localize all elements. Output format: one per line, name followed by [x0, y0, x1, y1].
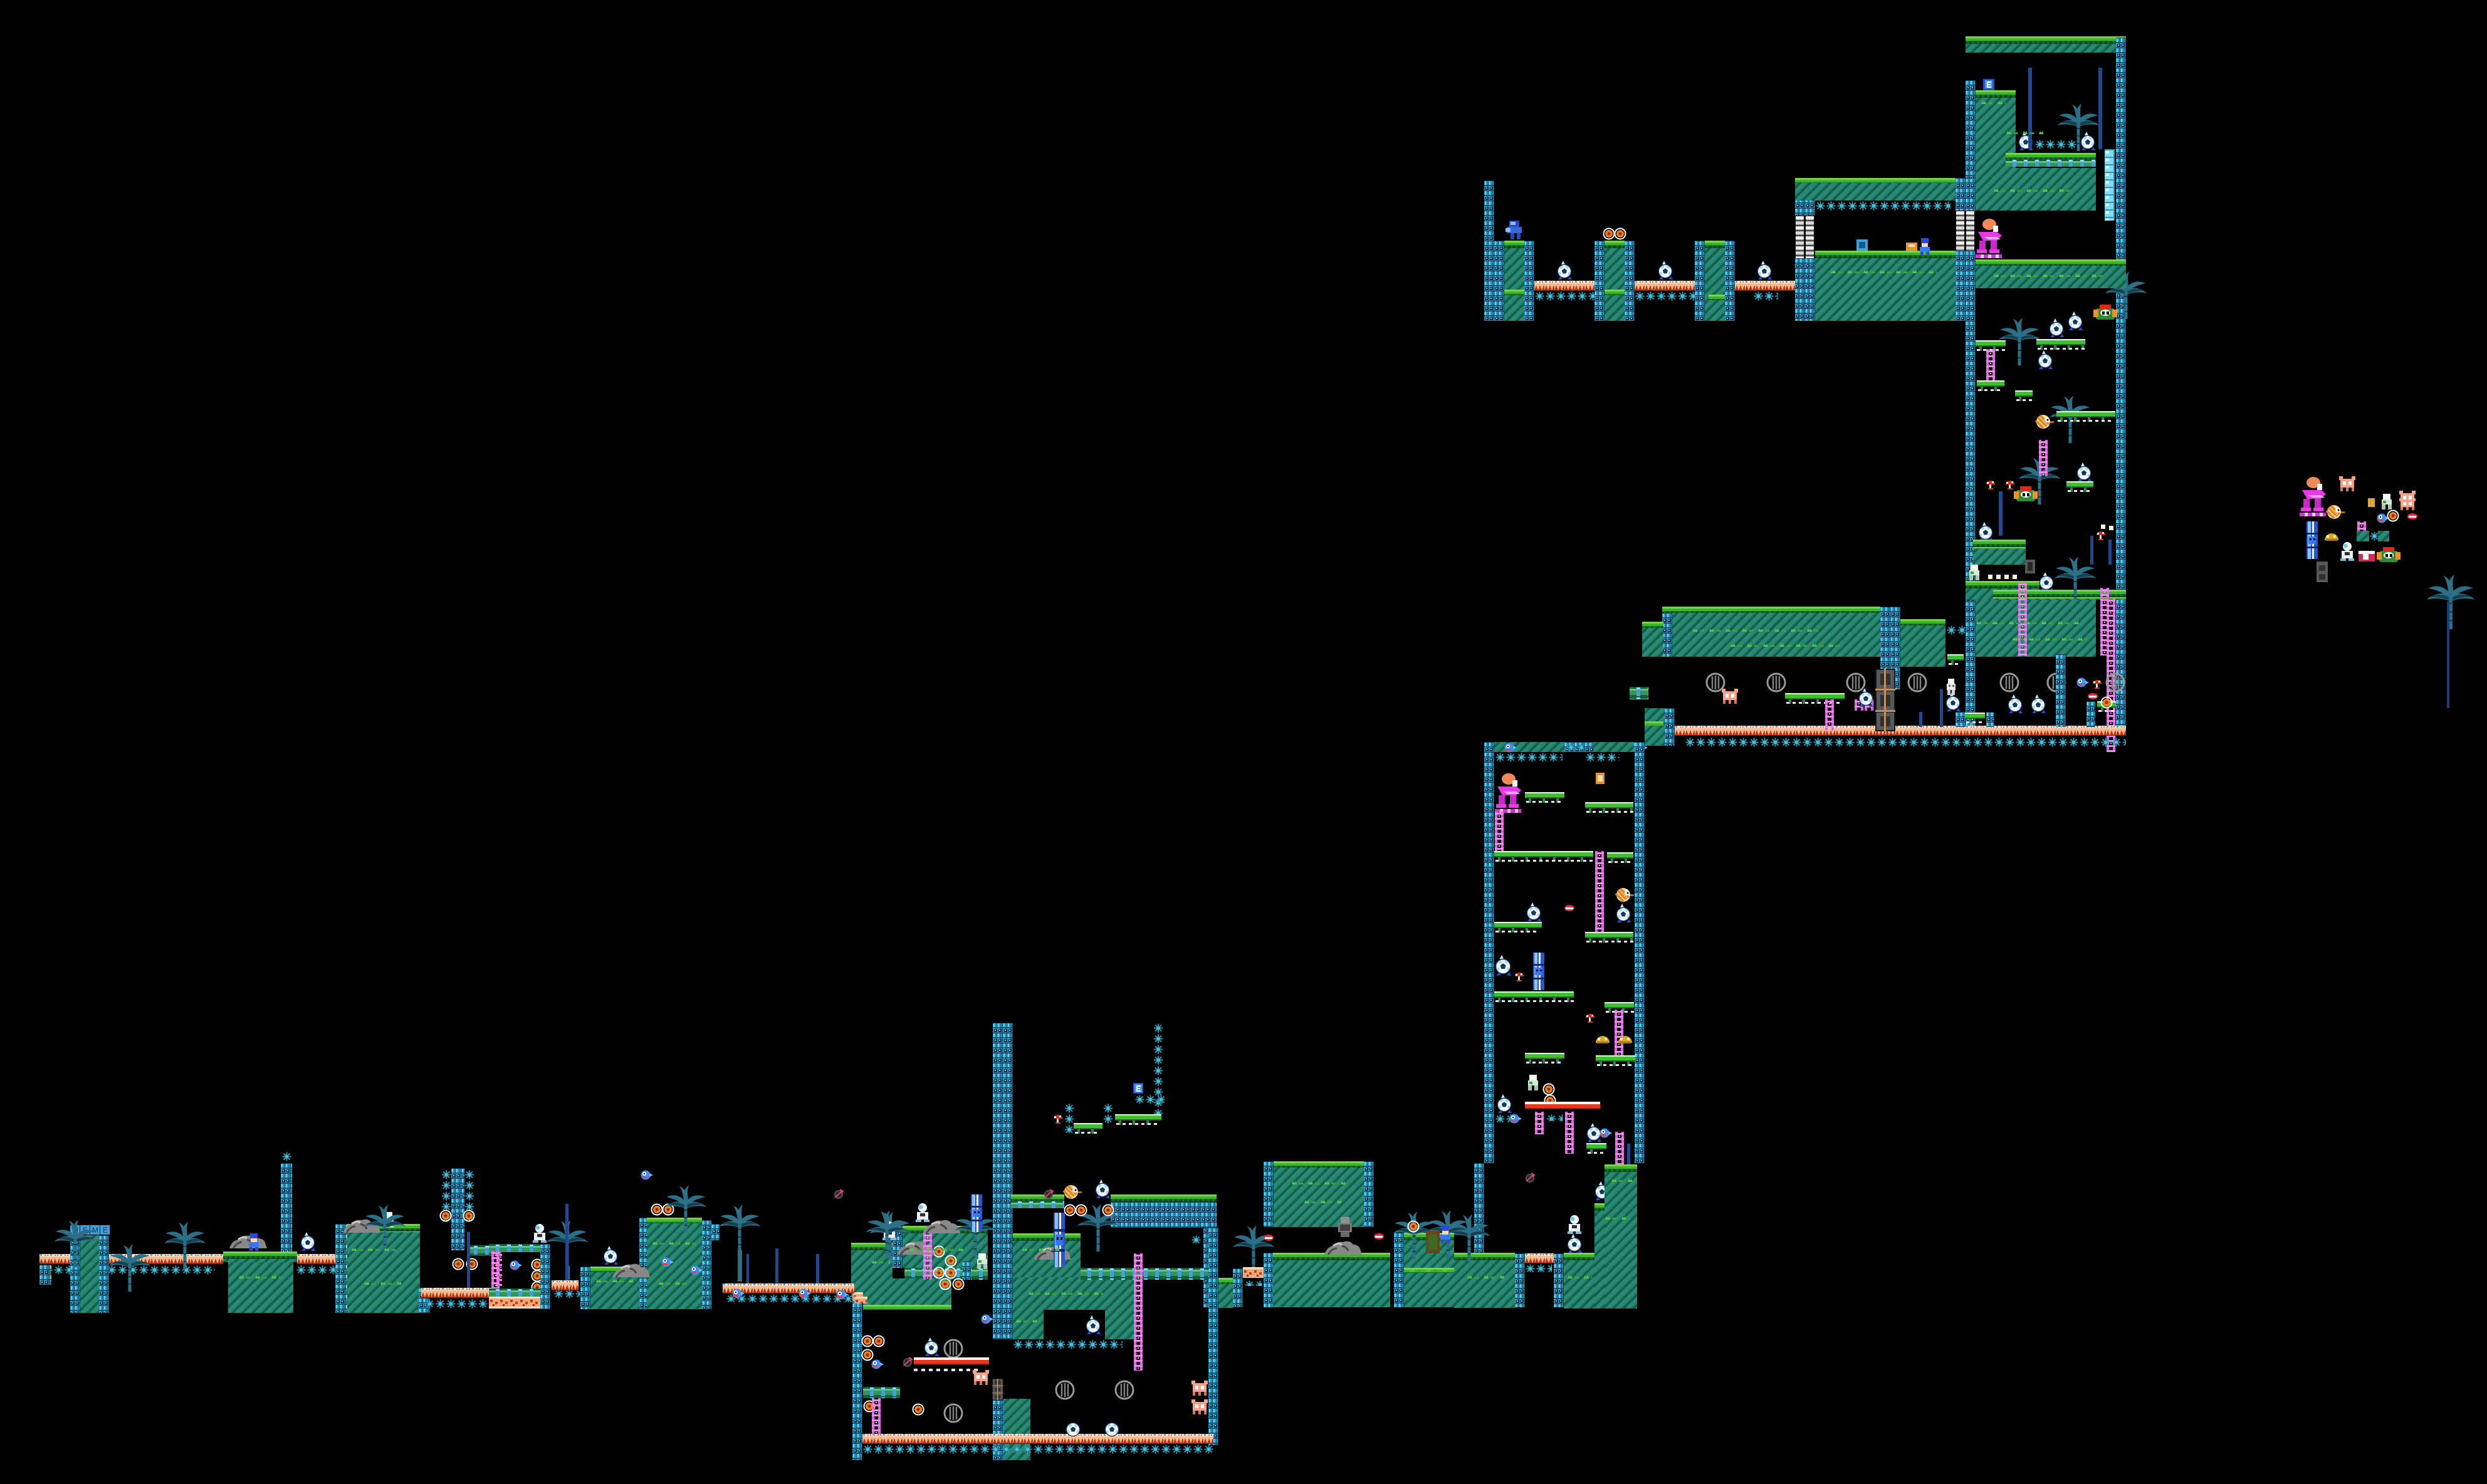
svg-text:E: E [103, 1226, 108, 1235]
svg-text:M: M [92, 1226, 98, 1235]
